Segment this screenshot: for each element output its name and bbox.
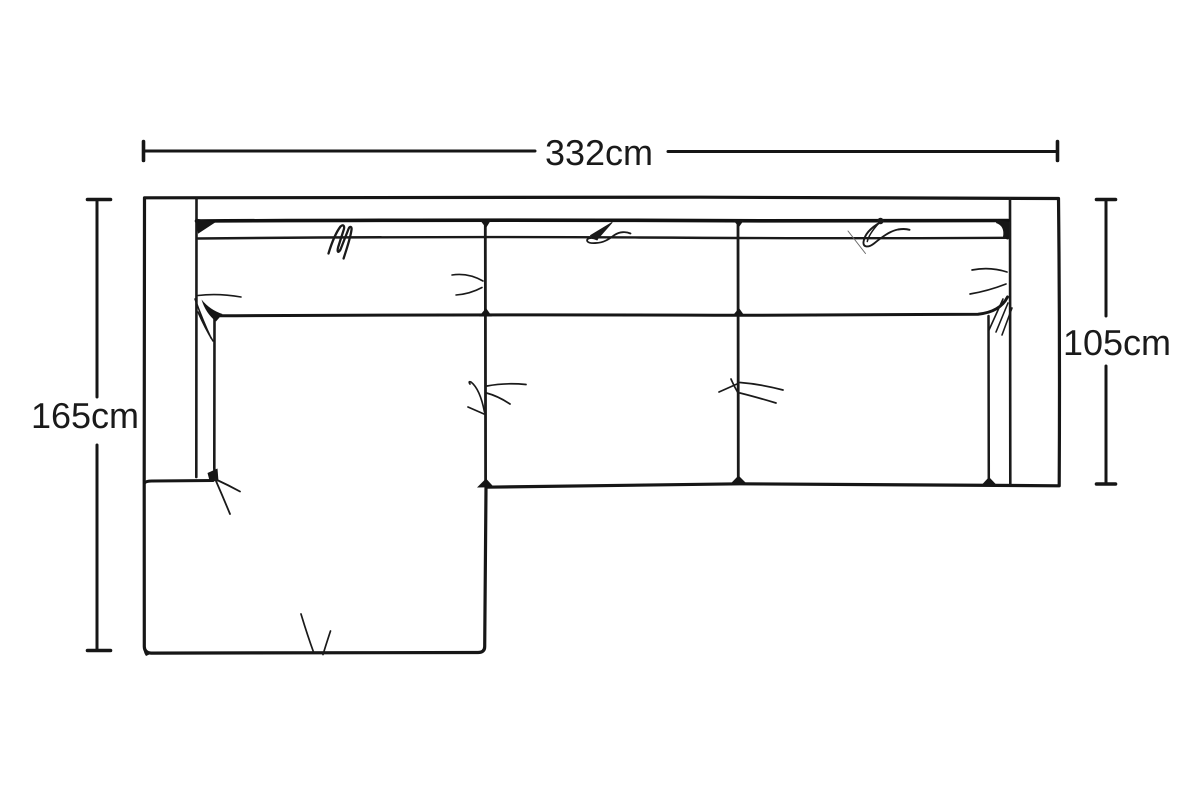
svg-text:165cm: 165cm bbox=[31, 395, 139, 436]
svg-text:332cm: 332cm bbox=[545, 132, 653, 173]
svg-text:105cm: 105cm bbox=[1063, 322, 1171, 363]
